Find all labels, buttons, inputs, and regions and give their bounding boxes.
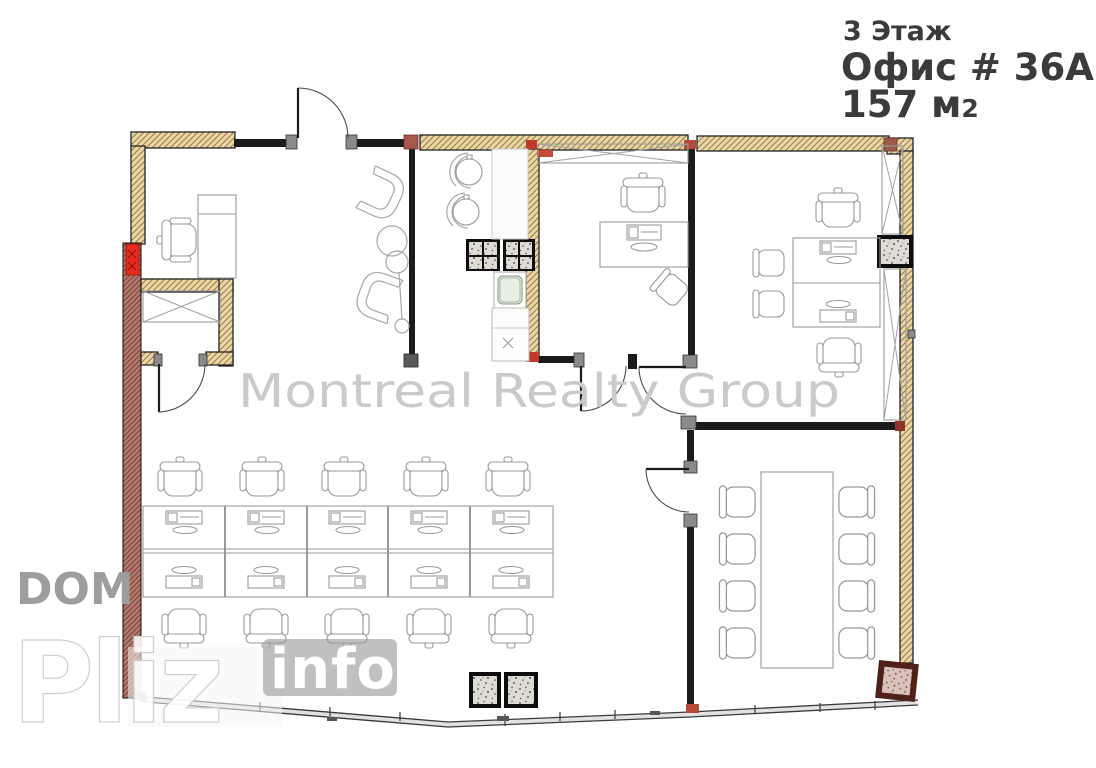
wall-kitchen-left (409, 147, 415, 360)
meeting-chair-icon (719, 627, 755, 659)
workstation-icon (166, 567, 202, 589)
workstation-icon (329, 567, 365, 589)
wall-top-middle (420, 135, 688, 150)
meeting-chair-icon (839, 533, 875, 565)
workstation-icon (166, 511, 202, 534)
title-block: 3 Этаж Офис # 36А 157 м2 (841, 16, 1094, 126)
column-bottom-1 (469, 672, 501, 708)
office-chair-icon (158, 457, 202, 496)
area-label: 157 м2 (841, 83, 979, 126)
floor-lamp-icon (386, 251, 409, 333)
floor-label: 3 Этаж (843, 16, 952, 47)
meeting-chair-icon (839, 486, 875, 518)
floor-plan-page: Montreal Realty Group DOM Pliz info 3 Эт… (0, 0, 1096, 768)
entrance-door-arc (298, 88, 348, 138)
office-chair-icon (621, 173, 665, 212)
wall-top-left (131, 132, 235, 148)
workstation-icon (493, 567, 529, 589)
column-right-wall (877, 235, 913, 268)
room-private-office (600, 173, 691, 309)
wall-meeting-left (687, 527, 694, 713)
meeting-chair-icon (719, 533, 755, 565)
area-exponent: 2 (961, 94, 978, 123)
floor-plan: Montreal Realty Group DOM Pliz info 3 Эт… (0, 0, 1096, 768)
office-chair-icon (407, 609, 451, 648)
guest-chair-icon (753, 290, 784, 318)
guest-chair-icon (753, 249, 784, 277)
tub-chair-icon (356, 166, 409, 223)
meeting-chair-icon (719, 580, 755, 612)
meeting-door-arc (646, 469, 689, 512)
kitchen-shaft-2 (503, 239, 535, 271)
watermark-brand-small: info (270, 637, 396, 702)
workstation-icon (248, 511, 284, 534)
office-chair-icon (816, 188, 860, 227)
wall-left-top (131, 146, 145, 244)
workstation-icon (411, 567, 447, 589)
kitchen-shaft-1 (466, 239, 500, 271)
reception-desk (198, 195, 236, 278)
stool-icon (447, 193, 479, 228)
doors (159, 88, 689, 512)
guest-chair-icon (649, 267, 691, 308)
office-chair-icon (322, 457, 366, 496)
watermark-brand-large: Pliz (12, 619, 220, 749)
watermark-side: DOM (16, 564, 134, 615)
workstation-icon (329, 511, 365, 534)
office-chair-icon (157, 218, 196, 262)
tub-chair-icon (352, 268, 403, 324)
workstation-icon (820, 241, 856, 264)
office-chair-icon (486, 457, 530, 496)
kitchen-sink (494, 272, 526, 308)
meeting-chair-icon (719, 486, 755, 518)
desk-monitor-icon (627, 225, 661, 251)
workstation-icon (493, 511, 529, 534)
meeting-chair-icon (839, 627, 875, 659)
wall-meeting-top (695, 422, 905, 430)
kitchen-counter-lower (492, 308, 529, 361)
meeting-chair-icon (839, 580, 875, 612)
workstation-block (143, 506, 553, 597)
coffee-table (377, 226, 407, 256)
column-meeting-corner (875, 660, 919, 702)
room-meeting (719, 472, 874, 668)
office-desk (600, 222, 688, 267)
column-bottom-2 (504, 672, 538, 708)
wall-office-divider (688, 149, 695, 361)
office-chair-icon (489, 609, 533, 648)
office-chair-icon (240, 457, 284, 496)
room-reception-lounge (157, 166, 409, 333)
workstation-icon (248, 567, 284, 589)
stool-icon (450, 153, 482, 188)
workstation-icon (820, 301, 856, 323)
room-team-office (753, 188, 880, 377)
area-value: 157 м (841, 83, 961, 126)
closet-x-box (143, 291, 220, 322)
workstation-icon (411, 511, 447, 534)
wall-top-right (697, 136, 889, 151)
watermark-center: Montreal Realty Group (238, 364, 840, 418)
radiator (126, 244, 139, 275)
conference-table (761, 472, 833, 668)
kitchen-counter-top (492, 149, 528, 239)
office-chair-icon (404, 457, 448, 496)
